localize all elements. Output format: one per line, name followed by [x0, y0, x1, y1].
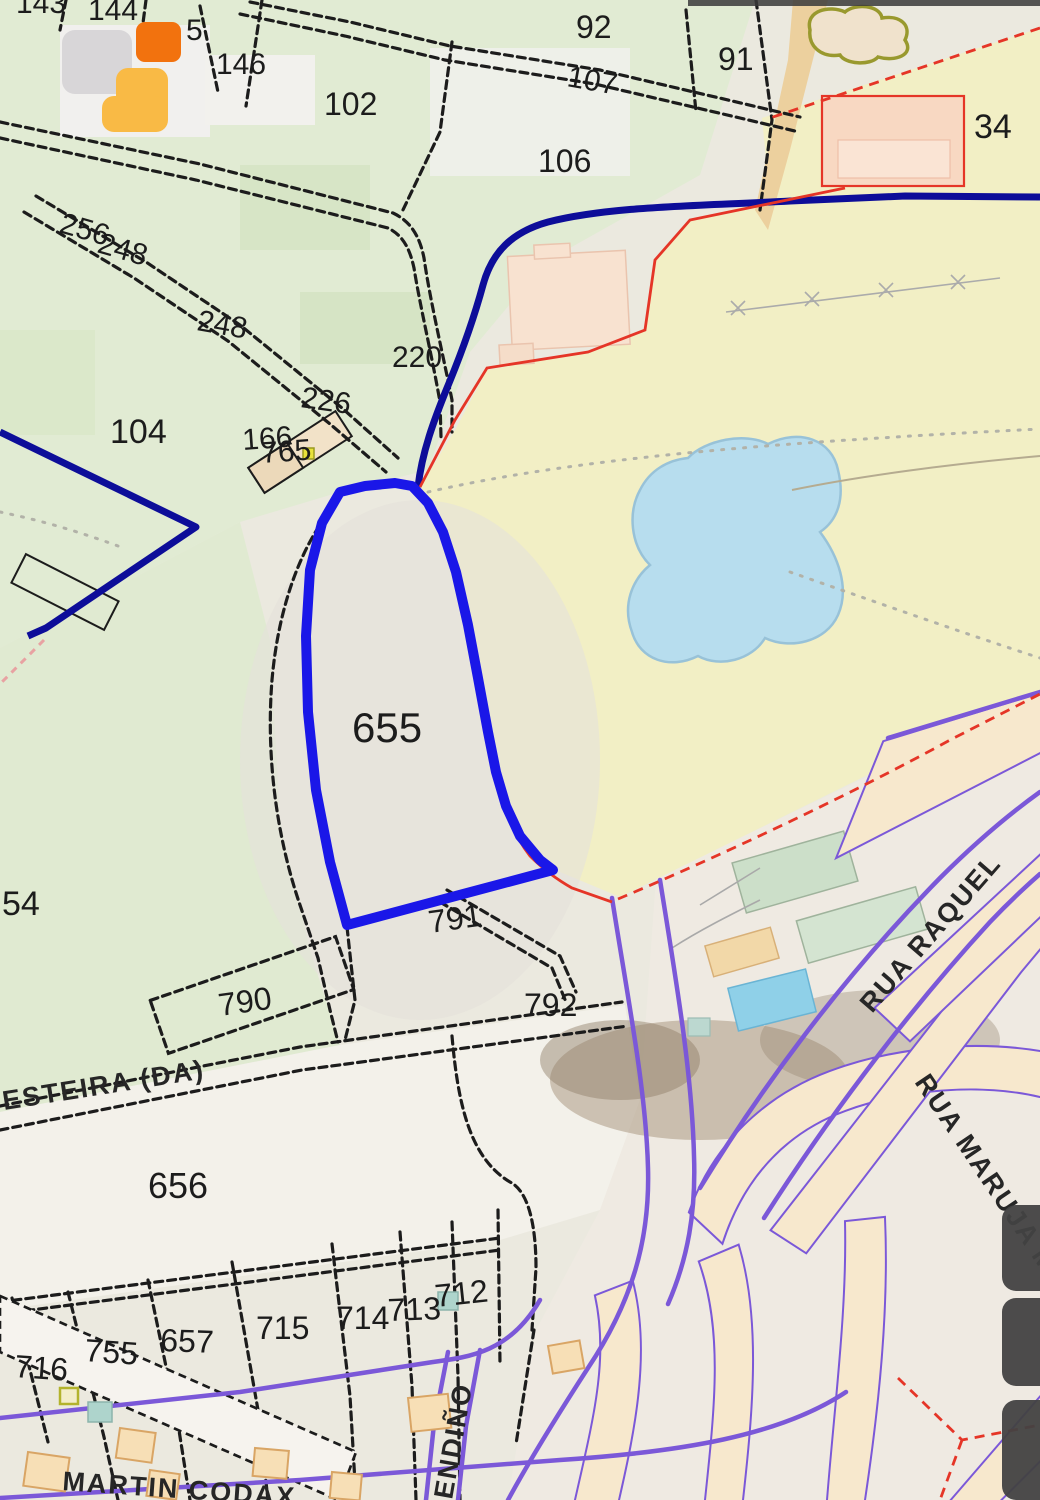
building-red-outline — [822, 96, 964, 186]
parcel-label: 226 — [299, 381, 353, 421]
parcel-label: 712 — [433, 1273, 490, 1314]
parcel-label: 713 — [387, 1290, 442, 1328]
cadastral-map: 143 144 5 146 102 92 107 91 106 34 256 2… — [0, 0, 1040, 1500]
parcel-label: 102 — [324, 86, 377, 122]
pond — [628, 437, 843, 662]
parcel-label: 5 — [186, 14, 203, 47]
parcel-label: 657 — [160, 1322, 215, 1360]
parcel-label: 106 — [538, 143, 591, 179]
parcel-label: 143 — [16, 0, 66, 20]
top-edge-strip — [688, 0, 1040, 6]
parcel-label: 220 — [392, 341, 442, 374]
parcel-label: 91 — [718, 41, 754, 77]
map-side-button-top[interactable] — [1002, 1205, 1040, 1291]
parcel-label: 716 — [14, 1348, 70, 1388]
parcel-label: 34 — [974, 108, 1012, 146]
parcel-label: 765 — [260, 434, 312, 470]
app-logo[interactable] — [58, 18, 188, 138]
map-viewport[interactable]: 143 144 5 146 102 92 107 91 106 34 256 2… — [0, 0, 1040, 1500]
parcel-label: 54 — [2, 885, 40, 923]
parcel-label: 656 — [148, 1165, 208, 1206]
landmark-symbol — [60, 1388, 78, 1404]
parcel-label: 715 — [256, 1310, 309, 1346]
parcel-label: 791 — [426, 897, 484, 940]
map-side-button-bottom[interactable] — [1002, 1400, 1040, 1500]
map-side-button-middle[interactable] — [1002, 1298, 1040, 1386]
parcel-label: 755 — [84, 1332, 140, 1372]
logo-orange-square-icon — [136, 22, 181, 62]
parcel-label: 104 — [110, 413, 167, 451]
parcel-label-655: 655 — [352, 704, 422, 751]
parcel-label: 790 — [216, 980, 274, 1023]
parcel-label: 146 — [216, 48, 266, 81]
parcel-label: 792 — [524, 987, 577, 1023]
parcel-label: 714 — [336, 1300, 389, 1336]
parcel-label: 92 — [576, 9, 612, 45]
